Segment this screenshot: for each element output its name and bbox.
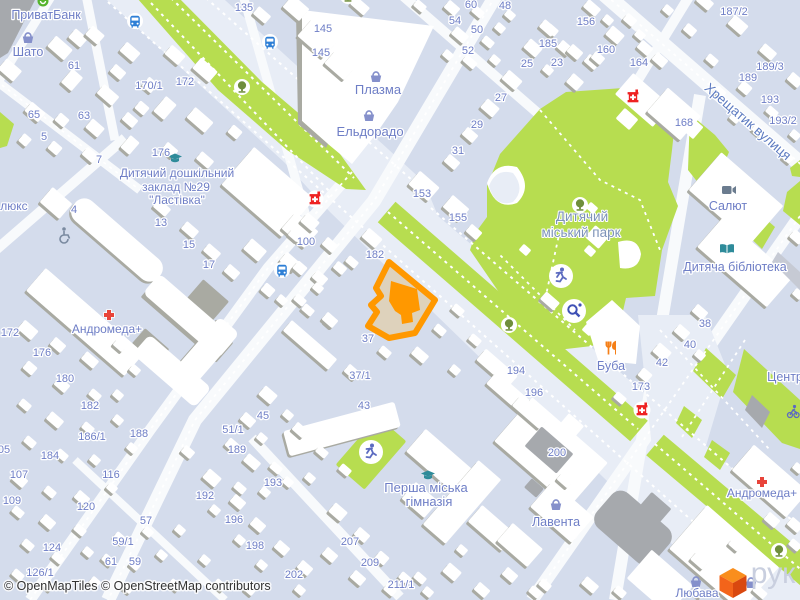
svg-text:182: 182 <box>366 249 384 261</box>
svg-text:43: 43 <box>358 400 370 412</box>
svg-text:рук: рук <box>751 557 796 590</box>
svg-text:202: 202 <box>285 569 303 581</box>
svg-text:люкс: люкс <box>0 199 27 213</box>
svg-text:Лавента: Лавента <box>532 515 580 529</box>
svg-text:189/3: 189/3 <box>756 61 784 73</box>
svg-text:168: 168 <box>675 117 693 129</box>
svg-text:172: 172 <box>1 327 19 339</box>
svg-text:23: 23 <box>551 57 563 69</box>
svg-text:160: 160 <box>597 44 615 56</box>
svg-text:116: 116 <box>102 469 120 481</box>
svg-text:189: 189 <box>739 72 757 84</box>
svg-text:145: 145 <box>314 23 332 35</box>
svg-text:29: 29 <box>471 119 483 131</box>
svg-text:Плазма: Плазма <box>355 82 402 97</box>
svg-text:38: 38 <box>699 318 711 330</box>
svg-text:189: 189 <box>228 444 246 456</box>
svg-text:05: 05 <box>0 444 10 456</box>
svg-text:196: 196 <box>525 387 543 399</box>
svg-text:100: 100 <box>297 236 315 248</box>
svg-text:Ельдорадо: Ельдорадо <box>336 124 403 139</box>
svg-text:155: 155 <box>449 212 467 224</box>
svg-text:59: 59 <box>129 556 141 568</box>
svg-text:193: 193 <box>761 94 779 106</box>
svg-text:Любава: Любава <box>675 586 718 600</box>
svg-text:45: 45 <box>257 410 269 422</box>
svg-text:гімназія: гімназія <box>406 494 453 509</box>
svg-text:© OpenMapTiles © OpenStreetMap: © OpenMapTiles © OpenStreetMap contribut… <box>4 579 271 593</box>
svg-text:135: 135 <box>235 2 253 14</box>
svg-text:207: 207 <box>341 536 359 548</box>
svg-text:37: 37 <box>362 333 374 345</box>
svg-text:15: 15 <box>183 239 195 251</box>
svg-text:31: 31 <box>452 145 464 157</box>
svg-text:188: 188 <box>130 428 148 440</box>
svg-text:52: 52 <box>462 45 474 57</box>
svg-text:209: 209 <box>361 557 379 569</box>
svg-text:176: 176 <box>152 147 170 159</box>
svg-text:153: 153 <box>413 188 431 200</box>
svg-text:107: 107 <box>10 469 28 481</box>
svg-text:42: 42 <box>656 357 668 369</box>
svg-text:Буба: Буба <box>597 359 625 373</box>
svg-text:63: 63 <box>78 110 90 122</box>
svg-text:182: 182 <box>81 400 99 412</box>
svg-text:"Ластівка": "Ластівка" <box>149 193 205 207</box>
svg-text:194: 194 <box>507 365 525 377</box>
svg-text:186/1: 186/1 <box>78 431 106 443</box>
svg-text:193: 193 <box>264 477 282 489</box>
svg-text:176: 176 <box>33 347 51 359</box>
svg-text:172: 172 <box>176 76 194 88</box>
svg-text:Салют: Салют <box>709 199 748 213</box>
svg-text:ПриватБанк: ПриватБанк <box>11 8 81 22</box>
svg-text:Андромеда+: Андромеда+ <box>72 322 142 336</box>
svg-text:60: 60 <box>465 0 477 11</box>
svg-text:61: 61 <box>68 60 80 72</box>
svg-text:54: 54 <box>449 15 461 27</box>
svg-text:120: 120 <box>77 501 95 513</box>
svg-text:170/1: 170/1 <box>135 80 163 92</box>
svg-text:Дитяча бібліотека: Дитяча бібліотека <box>683 260 786 274</box>
svg-text:185: 185 <box>539 38 557 50</box>
svg-text:124: 124 <box>43 542 61 554</box>
svg-text:57: 57 <box>140 515 152 527</box>
svg-text:7: 7 <box>96 154 102 166</box>
svg-text:Шато: Шато <box>13 45 44 59</box>
svg-text:109: 109 <box>3 495 21 507</box>
svg-text:заклад №29: заклад №29 <box>142 180 210 194</box>
svg-text:156: 156 <box>577 16 595 28</box>
svg-text:61: 61 <box>105 556 117 568</box>
svg-text:193/2: 193/2 <box>769 115 797 127</box>
svg-text:25: 25 <box>521 58 533 70</box>
svg-text:184: 184 <box>41 450 59 462</box>
svg-text:51/1: 51/1 <box>222 424 243 436</box>
svg-text:27: 27 <box>495 92 507 104</box>
svg-text:5: 5 <box>41 131 47 143</box>
svg-text:Андромеда+: Андромеда+ <box>727 486 797 500</box>
svg-text:Центр: Центр <box>767 370 800 384</box>
svg-text:164: 164 <box>630 57 648 69</box>
svg-text:міський парк: міський парк <box>541 225 620 240</box>
svg-text:65: 65 <box>28 109 40 121</box>
svg-text:192: 192 <box>196 490 214 502</box>
svg-text:13: 13 <box>155 217 167 229</box>
svg-text:200: 200 <box>548 447 566 459</box>
svg-text:48: 48 <box>499 0 511 12</box>
svg-text:4: 4 <box>71 204 77 216</box>
svg-text:59/1: 59/1 <box>112 536 133 548</box>
svg-text:211/1: 211/1 <box>388 579 415 591</box>
svg-text:Дитячий дошкільний: Дитячий дошкільний <box>120 166 234 180</box>
svg-text:37/1: 37/1 <box>349 370 370 382</box>
svg-text:180: 180 <box>56 373 74 385</box>
svg-text:17: 17 <box>203 259 215 271</box>
svg-text:126/1: 126/1 <box>26 567 54 579</box>
svg-text:Перша міська: Перша міська <box>384 480 468 495</box>
svg-text:40: 40 <box>684 339 696 351</box>
svg-text:50: 50 <box>471 24 483 36</box>
svg-text:Дитячий: Дитячий <box>556 209 608 224</box>
svg-text:173: 173 <box>632 381 650 393</box>
svg-text:187/2: 187/2 <box>720 6 748 18</box>
svg-text:196: 196 <box>225 514 243 526</box>
svg-text:198: 198 <box>246 540 264 552</box>
svg-text:145: 145 <box>312 47 330 59</box>
